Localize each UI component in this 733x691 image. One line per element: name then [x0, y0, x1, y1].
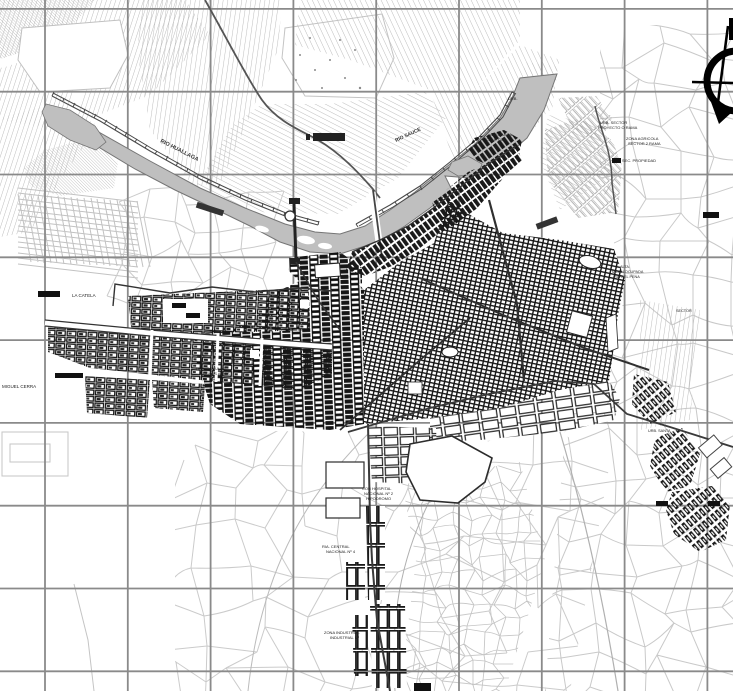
svg-text:INDUSTRIAL Nº: INDUSTRIAL Nº	[330, 635, 360, 640]
svg-text:RAFAEL PENA: RAFAEL PENA	[614, 275, 640, 279]
svg-text:BUENOS AIRES: BUENOS AIRES	[200, 371, 230, 376]
svg-text:SEC. PROPIEDAD: SEC. PROPIEDAD	[622, 158, 656, 163]
svg-text:ALTA.: ALTA.	[620, 265, 630, 269]
svg-text:LA CATELA: LA CATELA	[72, 293, 96, 298]
svg-text:SECTOR: SECTOR	[676, 309, 692, 313]
svg-text:SECTOR 2 RAMA: SECTOR 2 RAMA	[628, 141, 661, 146]
svg-text:HIPODROMO: HIPODROMO	[366, 496, 391, 501]
svg-text:PROYECTO O RAMA: PROYECTO O RAMA	[598, 125, 638, 130]
svg-text:URB.: URB.	[508, 96, 518, 101]
svg-text:MIGUEL CERRA: MIGUEL CERRA	[2, 384, 36, 389]
svg-text:URB. SANTA: URB. SANTA	[648, 429, 671, 433]
svg-text:MTE N.OCUPADA: MTE N.OCUPADA	[612, 270, 644, 274]
svg-text:NACIONAL Nº 4: NACIONAL Nº 4	[326, 549, 356, 554]
svg-text:CDLE COD: CDLE COD	[486, 137, 507, 142]
